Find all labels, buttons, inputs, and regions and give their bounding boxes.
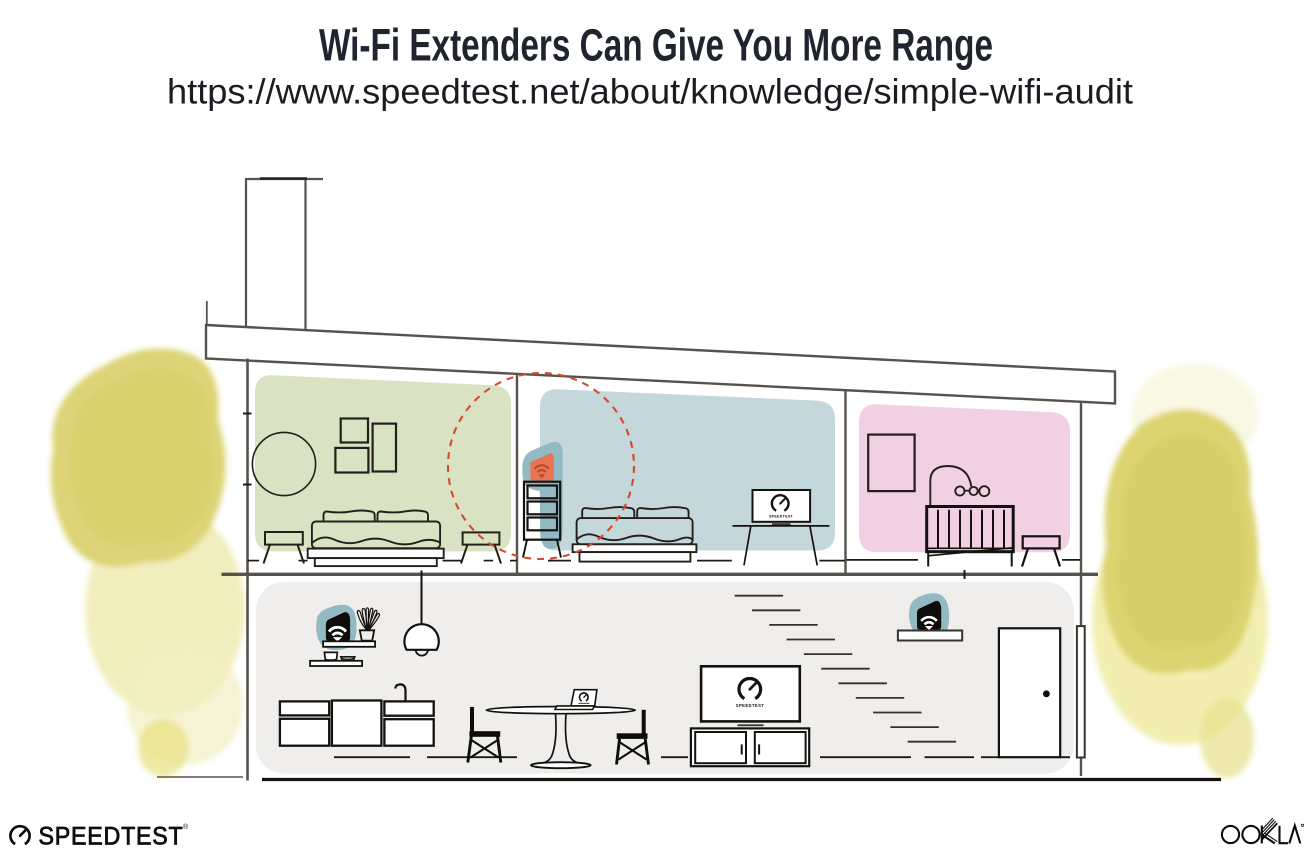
svg-text:https://www.speedtest.net/abou: https://www.speedtest.net/about/knowledg… — [167, 72, 1133, 112]
svg-text:®: ® — [183, 823, 189, 831]
svg-text:SPEEDTEST: SPEEDTEST — [39, 823, 184, 851]
svg-text:SPEEDTEST: SPEEDTEST — [769, 515, 794, 519]
svg-text:SPEEDTEST: SPEEDTEST — [736, 703, 765, 708]
svg-text:Wi-Fi Extenders Can Give You M: Wi-Fi Extenders Can Give You More Range — [319, 20, 993, 71]
